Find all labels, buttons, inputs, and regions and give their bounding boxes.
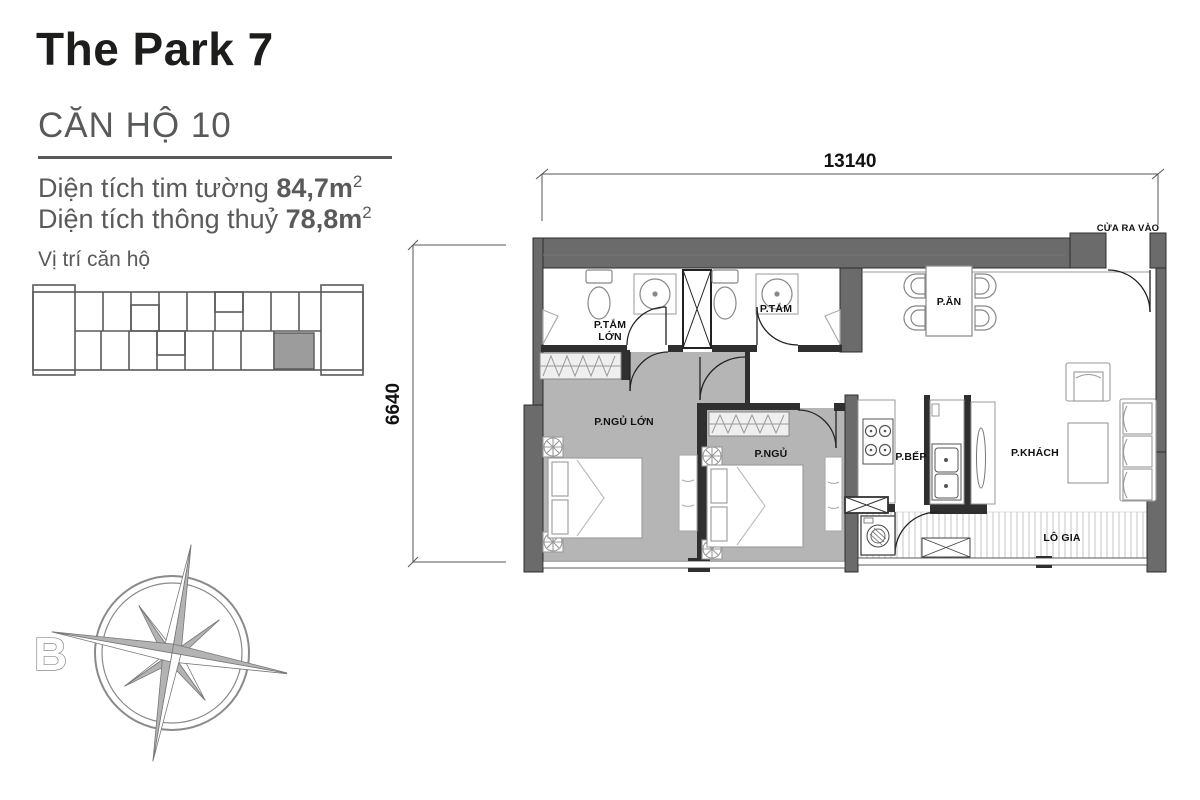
room-label-balcony: LÔ GIA — [1043, 531, 1081, 544]
area-tim-tuong: Diện tích tim tường 84,7m2 — [38, 172, 362, 204]
page: The Park 7 CĂN HỘ 10 Diện tích tim tường… — [0, 0, 1200, 800]
room-label-living: P.KHÁCH — [1011, 446, 1059, 459]
room-label-dining: P.ĂN — [937, 295, 962, 308]
area2-sup: 2 — [362, 203, 371, 222]
room-label-kitchen: P.BẾP — [895, 450, 926, 463]
rug — [825, 457, 842, 531]
highlighted-unit — [274, 333, 314, 369]
room-label-bedroom1: P.NGỦ LỚN — [594, 415, 654, 428]
area-thong-thuy: Diện tích thông thuỷ 78,8m2 — [38, 203, 372, 235]
area1-sup: 2 — [353, 172, 362, 191]
toilet-bowl — [714, 287, 736, 319]
building-location-diagram — [28, 280, 368, 380]
compass-north-label: B — [34, 628, 67, 680]
toilet-bowl — [588, 287, 610, 319]
area1-label: Diện tích tim tường — [38, 173, 276, 203]
room-label-bathroom1-l2: LỚN — [598, 330, 622, 343]
shower-panel — [543, 310, 558, 344]
area2-value: 78,8m — [286, 204, 363, 234]
toilet-tank — [712, 270, 738, 283]
unit-heading: CĂN HỘ 10 — [38, 106, 232, 146]
shower-panel — [825, 310, 840, 344]
location-label: Vị trí căn hộ — [38, 248, 150, 272]
room-label-bathroom2: P.TẮM — [760, 302, 792, 315]
floor-plan: 13140 6640 — [385, 130, 1200, 590]
room-label-bathroom1-l1: P.TẮM — [594, 318, 626, 331]
dim-width: 13140 — [824, 151, 877, 172]
shaft — [683, 270, 711, 348]
area1-value: 84,7m — [276, 173, 353, 203]
toilet-tank — [586, 270, 612, 283]
coffee-table — [1068, 423, 1108, 483]
stove — [863, 419, 893, 464]
page-title: The Park 7 — [36, 22, 274, 76]
compass-rose: B — [22, 528, 287, 778]
room-label-bedroom2: P.NGỦ — [755, 447, 788, 460]
tv — [977, 428, 986, 488]
rug — [679, 455, 697, 531]
room-label-entrance: CỬA RA VÀO — [1097, 222, 1159, 234]
heading-underline — [38, 156, 392, 159]
living-furniture — [1066, 363, 1156, 501]
dim-height: 6640 — [385, 383, 404, 425]
area2-label: Diện tích thông thuỷ — [38, 204, 286, 234]
